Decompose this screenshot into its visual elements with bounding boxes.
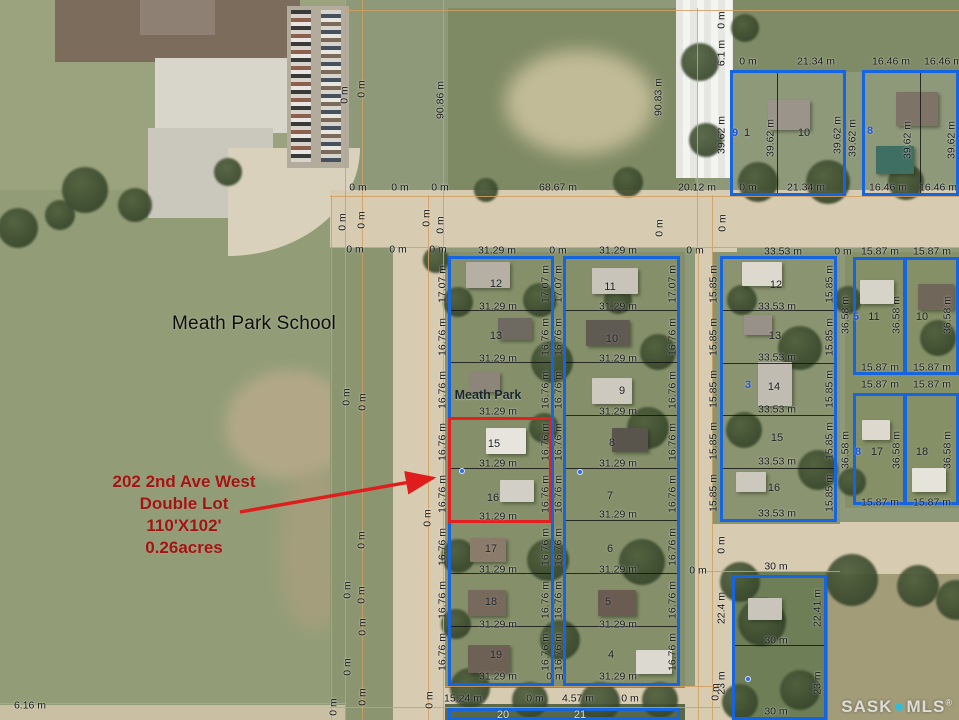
measurement-label: 68.67 m [539, 183, 577, 194]
lot-number: 15 [771, 432, 783, 444]
measurement-label: 0 m [436, 216, 447, 234]
listing-marker: 9 [732, 127, 738, 139]
measurement-label: 0 m [349, 183, 367, 194]
measurement-label: 16.76 m [438, 423, 449, 461]
measurement-label: 16.76 m [554, 371, 565, 409]
measurement-label: 16.76 m [541, 528, 552, 566]
lot-number: 13 [769, 330, 781, 342]
measurement-label: 15.85 m [709, 474, 720, 512]
lot-number: 5 [605, 596, 611, 608]
cadastral-grid-line [362, 0, 363, 720]
measurement-label: 16.46 m [872, 57, 910, 68]
measurement-label: 36.58 m [841, 296, 852, 334]
measurement-label: 0 m [338, 213, 349, 231]
measurement-label: 33.53 m [758, 509, 796, 520]
measurement-label: 39.62 m [903, 121, 914, 159]
measurement-label: 6.1 m [717, 40, 728, 66]
annotation-dimensions: 110'X102' [84, 515, 284, 537]
measurement-label: 33.53 m [758, 457, 796, 468]
lot-number: 18 [916, 446, 928, 458]
measurement-label: 31.29 m [599, 354, 637, 365]
measurement-label: 0 m [357, 80, 368, 98]
lot-number: 19 [490, 649, 502, 661]
measurement-label: 90.86 m [436, 81, 447, 119]
measurement-label: 16.76 m [668, 581, 679, 619]
measurement-label: 16.76 m [438, 318, 449, 356]
road [0, 705, 345, 720]
watermark-registered-icon: ® [945, 697, 953, 707]
measurement-label: 0 m [429, 245, 447, 256]
tree-canopy [474, 178, 498, 202]
measurement-label: 16.76 m [554, 633, 565, 671]
measurement-label: 0 m [357, 531, 368, 549]
lot-number: 12 [770, 279, 782, 291]
measurement-label: 33.53 m [758, 302, 796, 313]
measurement-label: 0 m [621, 694, 639, 705]
measurement-label: 0 m [689, 566, 707, 577]
measurement-label: 16.76 m [668, 633, 679, 671]
measurement-label: 39.62 m [848, 119, 859, 157]
measurement-label: 21.34 m [797, 57, 835, 68]
measurement-label: 16.76 m [541, 371, 552, 409]
measurement-label: 15.87 m [913, 363, 951, 374]
measurement-label: 22.41 m [813, 589, 824, 627]
listing-marker: 5 [853, 311, 859, 323]
lot-number: 11 [604, 281, 615, 293]
cadastral-grid-line [330, 196, 959, 197]
measurement-label: 15.87 m [861, 498, 899, 509]
lot-number: 11 [868, 311, 879, 323]
measurement-label: 31.29 m [599, 565, 637, 576]
aerial-map: Meath Park School Meath Park 202 2nd Ave… [0, 0, 959, 720]
measurement-label: 17.07 m [554, 265, 565, 303]
measurement-label: 31.29 m [599, 620, 637, 631]
measurement-label: 16.46 m [869, 183, 907, 194]
measurement-label: 16.76 m [554, 318, 565, 356]
measurement-label: 17.07 m [438, 265, 449, 303]
measurement-label: 31.29 m [479, 512, 517, 523]
measurement-label: 0 m [526, 694, 544, 705]
lot-number: 4 [608, 649, 614, 661]
listing-annotation: 202 2nd Ave West Double Lot 110'X102' 0.… [84, 471, 284, 559]
tree-canopy [897, 565, 939, 607]
measurement-label: 0 m [391, 183, 409, 194]
measurement-label: 39.62 m [947, 121, 958, 159]
measurement-label: 0 m [358, 393, 369, 411]
measurement-label: 90.83 m [654, 78, 665, 116]
lot-number: 1 [744, 127, 750, 139]
tree-canopy [731, 14, 759, 42]
measurement-label: 16.76 m [541, 581, 552, 619]
measurement-label: 0 m [357, 211, 368, 229]
measurement-label: 0 m [422, 209, 433, 227]
measurement-label: 31.29 m [479, 302, 517, 313]
lot-number: 18 [485, 596, 497, 608]
lot-number: 10 [916, 311, 928, 323]
measurement-label: 0 m [346, 245, 364, 256]
measurement-label: 16.76 m [438, 528, 449, 566]
measurement-label: 16.76 m [541, 318, 552, 356]
sask-mls-watermark: SASKMLS® [841, 697, 953, 717]
measurement-label: 15.87 m [861, 363, 899, 374]
measurement-label: 31.29 m [599, 510, 637, 521]
measurement-label: 33.53 m [758, 353, 796, 364]
measurement-label: 16.76 m [668, 423, 679, 461]
measurement-label: 0 m [357, 586, 368, 604]
measurement-label: 16.76 m [541, 423, 552, 461]
measurement-label: 15.85 m [825, 318, 836, 356]
lot-group-outline [448, 708, 680, 720]
measurement-label: 0 m [546, 672, 564, 683]
measurement-label: 15.85 m [709, 370, 720, 408]
measurement-label: 16.76 m [438, 475, 449, 513]
measurement-label: 0 m [343, 658, 354, 676]
measurement-label: 31.29 m [479, 672, 517, 683]
watermark-mls: MLS [906, 697, 945, 716]
lot-number: 17 [871, 446, 883, 458]
measurement-label: 0 m [655, 219, 666, 237]
measurement-label: 31.29 m [599, 302, 637, 313]
lot-number: 14 [768, 381, 780, 393]
measurement-label: 0 m [739, 183, 757, 194]
lot-number: 16 [768, 482, 780, 494]
measurement-label: 0 m [739, 57, 757, 68]
measurement-label: 31.29 m [599, 246, 637, 257]
measurement-label: 15.87 m [913, 498, 951, 509]
measurement-label: 16.46 m [919, 183, 957, 194]
lot-number: 17 [485, 543, 497, 555]
measurement-label: 21.34 m [787, 183, 825, 194]
lot-number: 21 [574, 709, 586, 720]
measurement-label: 31.29 m [478, 246, 516, 257]
cadastral-grid-line [445, 686, 720, 687]
measurement-label: 0 m [717, 11, 728, 29]
measurement-label: 0 m [423, 509, 434, 527]
annotation-address: 202 2nd Ave West [84, 471, 284, 493]
lot-number: 16 [487, 492, 499, 504]
measurement-label: 33.53 m [764, 247, 802, 258]
measurement-label: 16.76 m [438, 581, 449, 619]
measurement-label: 6.16 m [14, 701, 46, 712]
measurement-label: 0 m [425, 691, 436, 709]
measurement-label: 36.58 m [841, 431, 852, 469]
measurement-label: 0 m [686, 246, 704, 257]
measurement-label: 0 m [340, 86, 351, 104]
cadastral-grid-line [345, 0, 346, 720]
measurement-label: 15.85 m [825, 265, 836, 303]
cadastral-grid-line [331, 195, 332, 720]
listing-marker [745, 676, 751, 682]
measurement-label: 17.07 m [668, 265, 679, 303]
measurement-label: 4.57 m [562, 694, 594, 705]
measurement-label: 0 m [711, 683, 722, 701]
measurement-label: 0 m [358, 688, 369, 706]
measurement-label: 31.29 m [479, 565, 517, 576]
cadastral-grid-line [697, 8, 698, 248]
measurement-label: 16.76 m [541, 475, 552, 513]
listing-marker: 3 [745, 379, 751, 391]
measurement-label: 15.85 m [709, 422, 720, 460]
measurement-label: 31.29 m [599, 459, 637, 470]
lot-number: 6 [607, 543, 613, 555]
lot-number: 8 [609, 437, 615, 449]
measurement-label: 16.76 m [668, 475, 679, 513]
cadastral-grid-line [698, 248, 699, 720]
lot-number: 12 [490, 278, 502, 290]
measurement-label: 16.76 m [554, 528, 565, 566]
lot-number: 9 [619, 385, 625, 397]
listing-marker [459, 468, 465, 474]
measurement-label: 0 m [389, 245, 407, 256]
measurement-label: 16.76 m [554, 581, 565, 619]
listing-marker [577, 469, 583, 475]
measurement-label: 31.29 m [479, 354, 517, 365]
cadastral-grid-line [0, 703, 345, 704]
measurement-label: 31.29 m [479, 407, 517, 418]
measurement-label: 15.85 m [709, 318, 720, 356]
measurement-label: 0 m [834, 247, 852, 258]
measurement-label: 31.29 m [479, 459, 517, 470]
measurement-label: 33.53 m [758, 405, 796, 416]
measurement-label: 0 m [549, 246, 567, 257]
measurement-label: 15.24 m [444, 694, 482, 705]
annotation-acreage: 0.26acres [84, 537, 284, 559]
tree-canopy [45, 200, 75, 230]
tree-canopy [613, 167, 643, 197]
measurement-label: 31.29 m [479, 620, 517, 631]
measurement-label: 0 m [718, 214, 729, 232]
measurement-label: 15.85 m [825, 474, 836, 512]
annotation-lot-type: Double Lot [84, 493, 284, 515]
measurement-label: 22.4 m [717, 592, 728, 624]
measurement-label: 0 m [329, 698, 340, 716]
lot-number: 7 [607, 490, 613, 502]
lot-number: 15 [488, 438, 500, 450]
tree-canopy [681, 43, 719, 81]
school-roof [140, 0, 215, 35]
measurement-label: 36.58 m [892, 296, 903, 334]
measurement-label: 15.87 m [861, 247, 899, 258]
listing-marker: 8 [855, 446, 861, 458]
measurement-label: 15.87 m [913, 247, 951, 258]
field-bare-patch [505, 50, 655, 155]
tree-canopy [118, 188, 152, 222]
measurement-label: 16.76 m [554, 475, 565, 513]
measurement-label: 16.76 m [554, 423, 565, 461]
parked-cars [291, 10, 311, 162]
measurement-label: 16.76 m [668, 318, 679, 356]
lot-number: 13 [490, 330, 502, 342]
tree-canopy [214, 158, 242, 186]
measurement-label: 36.58 m [943, 431, 954, 469]
measurement-label: 16.76 m [668, 371, 679, 409]
watermark-sask: SASK [841, 697, 892, 716]
measurement-label: 39.62 m [833, 116, 844, 154]
measurement-label: 0 m [717, 536, 728, 554]
measurement-label: 16.76 m [438, 633, 449, 671]
measurement-label: 36.58 m [892, 431, 903, 469]
listing-marker: 8 [867, 125, 873, 137]
cadastral-grid-line [345, 10, 959, 11]
measurement-label: 15.85 m [709, 265, 720, 303]
lot-number: 20 [497, 709, 509, 720]
measurement-label: 16.76 m [668, 528, 679, 566]
tree-canopy [826, 554, 878, 606]
measurement-label: 31.29 m [599, 407, 637, 418]
measurement-label: 30 m [764, 562, 787, 573]
town-name-label: Meath Park [447, 388, 529, 402]
school-name-label: Meath Park School [130, 313, 378, 335]
cadastral-grid-line [428, 195, 429, 720]
measurement-label: 30 m [764, 707, 787, 718]
measurement-label: 20.12 m [678, 183, 716, 194]
measurement-label: 0 m [342, 388, 353, 406]
lot-number: 10 [798, 127, 810, 139]
measurement-label: 39.62 m [766, 119, 777, 157]
measurement-label: 0 m [431, 183, 449, 194]
measurement-label: 16.46 m [924, 57, 959, 68]
measurement-label: 15.85 m [825, 422, 836, 460]
measurement-label: 36.58 m [943, 296, 954, 334]
measurement-label: 15.87 m [861, 380, 899, 391]
measurement-label: 30 m [764, 636, 787, 647]
measurement-label: 39.62 m [717, 116, 728, 154]
measurement-label: 17.07 m [541, 265, 552, 303]
measurement-label: 16.76 m [541, 633, 552, 671]
measurement-label: 15.85 m [825, 370, 836, 408]
lot-number: 10 [606, 333, 618, 345]
measurement-label: 15.87 m [913, 380, 951, 391]
school-roof [155, 58, 305, 133]
measurement-label: 0 m [343, 581, 354, 599]
measurement-label: 23 m [813, 671, 824, 694]
measurement-label: 31.29 m [599, 672, 637, 683]
watermark-dot-icon [895, 703, 903, 711]
measurement-label: 0 m [358, 618, 369, 636]
